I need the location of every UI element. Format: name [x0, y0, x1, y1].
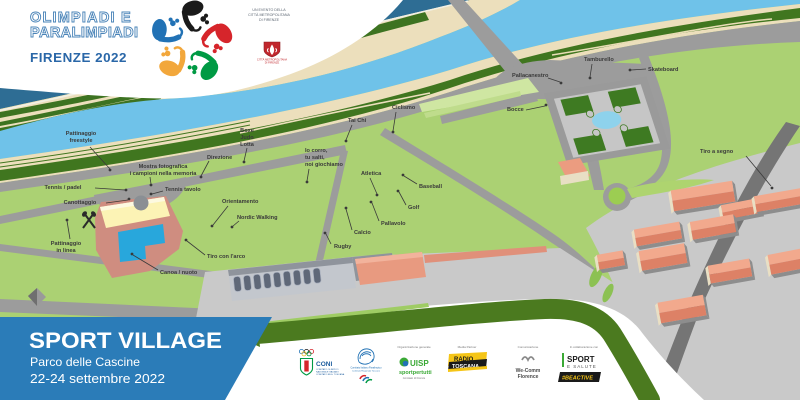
svg-text:CONI: CONI — [316, 361, 332, 368]
svg-text:Orientamento: Orientamento — [222, 199, 259, 205]
svg-text:COMITATO REG. TOSCANA: COMITATO REG. TOSCANA — [316, 373, 345, 376]
svg-text:Pallavolo: Pallavolo — [381, 221, 406, 227]
svg-text:tu salti,: tu salti, — [305, 155, 325, 161]
svg-text:Media Partner: Media Partner — [458, 345, 477, 349]
svg-text:Calcio: Calcio — [354, 230, 371, 236]
svg-text:FIRENZE 2022: FIRENZE 2022 — [30, 50, 127, 65]
svg-text:Pattinaggio: Pattinaggio — [51, 241, 82, 247]
svg-text:Nordic Walking: Nordic Walking — [237, 215, 278, 221]
svg-text:Skateboard: Skateboard — [648, 67, 679, 73]
svg-text:Pallacanestro: Pallacanestro — [512, 73, 549, 79]
svg-text:CITTÀ METROPOLITANA: CITTÀ METROPOLITANA — [248, 13, 290, 17]
svg-text:Comitato Regionale Toscano: Comitato Regionale Toscano — [352, 370, 381, 373]
svg-text:DI FIRENZE: DI FIRENZE — [259, 18, 280, 22]
svg-text:Golf: Golf — [408, 205, 419, 211]
svg-text:DI FIRENZE: DI FIRENZE — [265, 61, 280, 65]
svg-text:Tamburello: Tamburello — [584, 57, 614, 63]
svg-text:Florence: Florence — [518, 374, 539, 380]
svg-text:Tiro a segno: Tiro a segno — [700, 149, 734, 155]
svg-text:SPORT: SPORT — [567, 355, 595, 364]
svg-text:Tai Chi: Tai Chi — [348, 118, 367, 124]
svg-text:NAZIONALE ITALIANO: NAZIONALE ITALIANO — [316, 370, 339, 373]
svg-text:Pattinaggio: Pattinaggio — [66, 131, 97, 137]
svg-text:PARALIMPIADI: PARALIMPIADI — [30, 25, 138, 41]
svg-text:Comunicazione: Comunicazione — [518, 345, 539, 349]
svg-text:Canottaggio: Canottaggio — [64, 200, 97, 206]
svg-text:COMITATO OLIMPICO: COMITATO OLIMPICO — [316, 368, 339, 371]
svg-text:Lotta: Lotta — [240, 142, 255, 148]
svg-text:Baseball: Baseball — [419, 184, 442, 190]
svg-text:UISP: UISP — [410, 359, 429, 368]
svg-text:OLIMPIADI E: OLIMPIADI E — [30, 10, 132, 26]
svg-text:Parco delle Cascine: Parco delle Cascine — [30, 355, 140, 369]
svg-text:noi giochiamo: noi giochiamo — [305, 162, 343, 168]
svg-text:Boxe: Boxe — [240, 128, 254, 134]
svg-text:in linea: in linea — [56, 248, 76, 254]
svg-text:i campioni nella memoria: i campioni nella memoria — [130, 171, 198, 177]
svg-text:Tennis / padel: Tennis / padel — [45, 185, 82, 191]
svg-text:sportpertutti: sportpertutti — [399, 370, 432, 376]
svg-text:22-24 settembre 2022: 22-24 settembre 2022 — [30, 371, 165, 386]
svg-text:Ciclismo: Ciclismo — [392, 105, 416, 111]
svg-text:SPORT VILLAGE: SPORT VILLAGE — [29, 328, 222, 353]
svg-text:Tiro con l'arco: Tiro con l'arco — [207, 254, 246, 260]
svg-text:In collaborazione con: In collaborazione con — [570, 345, 599, 349]
svg-text:Atletica: Atletica — [361, 171, 382, 177]
svg-text:Io corro,: Io corro, — [305, 148, 328, 154]
svg-text:Tennis tavolo: Tennis tavolo — [165, 187, 201, 193]
svg-text:Canoa / nuoto: Canoa / nuoto — [160, 270, 198, 276]
svg-text:E SALUTE: E SALUTE — [567, 364, 597, 369]
svg-text:Comitato di Firenze: Comitato di Firenze — [403, 376, 426, 380]
svg-text:Comitato Italiano Paralimpico: Comitato Italiano Paralimpico — [350, 367, 382, 370]
svg-text:Bocce: Bocce — [507, 107, 524, 113]
svg-text:Direzione: Direzione — [207, 155, 232, 161]
svg-text:Organizzazione generale: Organizzazione generale — [397, 345, 431, 349]
svg-text:UN EVENTO DELLA: UN EVENTO DELLA — [252, 8, 286, 12]
svg-text:#BEACTIVE: #BEACTIVE — [562, 376, 593, 382]
svg-text:freestyle: freestyle — [69, 138, 92, 144]
svg-text:Mostra fotografica: Mostra fotografica — [139, 164, 189, 170]
svg-text:Rugby: Rugby — [334, 244, 352, 250]
svg-text:Judo: Judo — [240, 135, 254, 141]
